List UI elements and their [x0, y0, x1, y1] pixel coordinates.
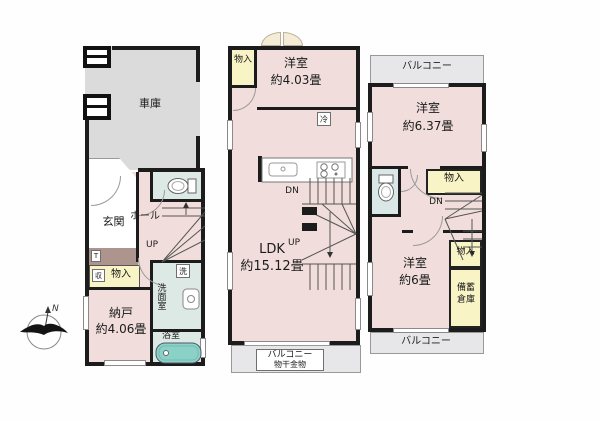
wall	[440, 166, 482, 169]
stockpile-label-line1: 備蓄	[452, 284, 480, 293]
garage-gate-icon	[83, 46, 111, 68]
up-label-f1: UP	[140, 241, 164, 250]
balcony-door-window	[393, 328, 449, 333]
balcony-f3-top-label: バルコニー	[395, 62, 459, 73]
washroom-label: 洗面室	[155, 274, 164, 318]
storeroom-label: 納戸	[89, 307, 153, 320]
wall	[87, 287, 153, 290]
closet-f1-label: 物入	[103, 270, 139, 281]
wall	[228, 46, 232, 345]
dn-label-f3: DN	[425, 198, 447, 207]
bathroom-label: 浴室	[152, 332, 190, 341]
window	[367, 262, 373, 296]
wall	[402, 230, 413, 233]
ldk-label: LDK	[246, 243, 298, 257]
toilet-icon-f3	[376, 173, 396, 203]
window	[104, 360, 146, 366]
closet-f2-label: 物入	[230, 56, 256, 65]
balcony-f2-note: 物干金物	[274, 361, 306, 369]
stairs-icon-f1	[162, 200, 205, 262]
wall	[372, 214, 401, 217]
wall	[112, 46, 200, 50]
washbasin-icon	[182, 288, 200, 310]
wall	[228, 46, 360, 50]
fridge-mark: 冷	[317, 112, 331, 126]
closet2-f3-label: 物入	[449, 248, 482, 257]
storeroom-size-label: 約4.06畳	[86, 323, 156, 336]
bedroom1-label: 洋室	[402, 102, 454, 115]
balcony-door-window	[393, 83, 449, 88]
balcony-f3-bottom-label: バルコニー	[394, 337, 458, 348]
window	[227, 120, 233, 150]
bedroom2-size-label: 約6畳	[390, 274, 440, 287]
bathtub-icon	[155, 342, 202, 364]
compass-icon: N	[18, 300, 70, 358]
bedroom-f2-size-label: 約4.03畳	[258, 74, 334, 87]
wall	[85, 170, 89, 366]
garage-gate-icon	[83, 94, 111, 120]
window	[367, 112, 373, 142]
double-door-leaf-icon	[283, 32, 303, 46]
tile-mark: T	[91, 250, 101, 262]
toilet-icon-f1	[166, 176, 198, 196]
window	[355, 122, 361, 148]
washer-mark: 洗	[176, 264, 190, 278]
bedroom2-label: 洋室	[390, 257, 440, 270]
wall	[372, 166, 408, 169]
bedroom1-size-label: 約6.37畳	[390, 120, 466, 133]
wall	[196, 136, 200, 172]
wall	[257, 107, 357, 110]
double-door-leaf-icon	[261, 32, 281, 46]
wall	[138, 168, 205, 172]
bedroom-f2-label: 洋室	[266, 57, 326, 70]
wall	[85, 118, 89, 172]
floor-plan-canvas: T 収 洗 車庫 玄関 ホール UP 物入 納戸 約4.06畳 洗面室 浴室	[0, 0, 600, 422]
hall-label: ホール	[121, 212, 169, 223]
dn-label-f2: DN	[281, 187, 303, 196]
balcony-f2-label-box: バルコニー 物干金物	[256, 349, 324, 371]
wall	[482, 83, 486, 332]
window	[355, 298, 361, 330]
garage-label: 車庫	[120, 98, 180, 110]
wall	[254, 49, 257, 87]
compass-north-label: N	[52, 304, 59, 314]
closet1-f3-label: 物入	[432, 174, 476, 185]
window	[481, 124, 487, 152]
ldk-size-label: 約15.12畳	[230, 260, 314, 274]
stockpile-label-line2: 倉庫	[452, 296, 480, 305]
wall	[196, 46, 200, 82]
